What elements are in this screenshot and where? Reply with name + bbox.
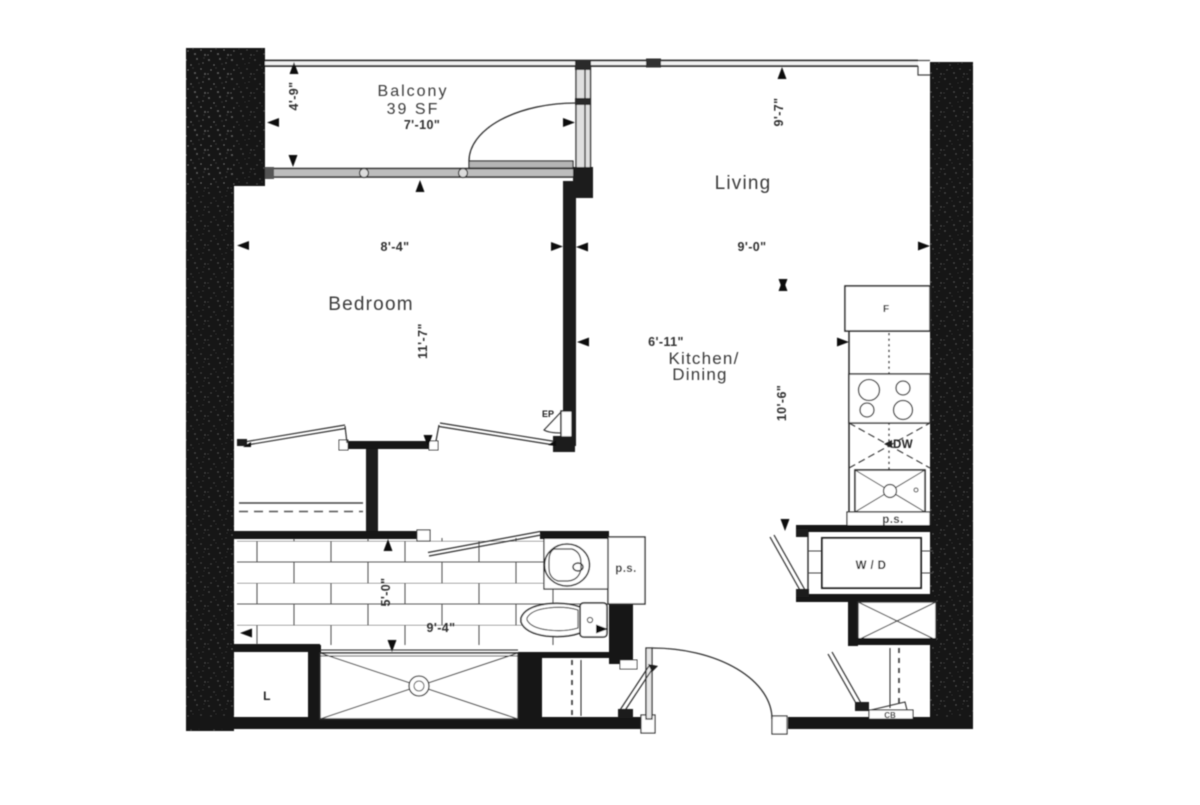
svg-text:6'-11": 6'-11" (648, 335, 684, 349)
svg-text:F: F (883, 304, 889, 315)
svg-text:p.s.: p.s. (882, 514, 903, 526)
svg-text:4'-9": 4'-9" (287, 82, 301, 111)
svg-text:W / D: W / D (856, 560, 887, 572)
svg-text:9'-4": 9'-4" (427, 621, 456, 635)
svg-text:11'-7": 11'-7" (416, 323, 430, 359)
svg-text:9'-7": 9'-7" (772, 98, 786, 127)
svg-text:9'-0": 9'-0" (738, 240, 767, 254)
svg-text:CB: CB (884, 711, 896, 720)
svg-text:39 SF: 39 SF (387, 101, 440, 118)
svg-text:p.s.: p.s. (615, 563, 636, 575)
svg-text:5'-0": 5'-0" (379, 578, 393, 607)
svg-text:8'-4": 8'-4" (381, 240, 410, 254)
svg-text:EP: EP (542, 409, 554, 419)
svg-text:Bedroom: Bedroom (328, 294, 414, 315)
svg-text:DW: DW (893, 439, 913, 451)
svg-text:10'-6": 10'-6" (775, 385, 789, 421)
svg-text:Dining: Dining (672, 365, 727, 384)
svg-text:7'-10": 7'-10" (404, 118, 440, 132)
svg-text:Living: Living (715, 173, 772, 194)
svg-text:L: L (263, 689, 271, 703)
svg-text:Balcony: Balcony (378, 83, 449, 100)
